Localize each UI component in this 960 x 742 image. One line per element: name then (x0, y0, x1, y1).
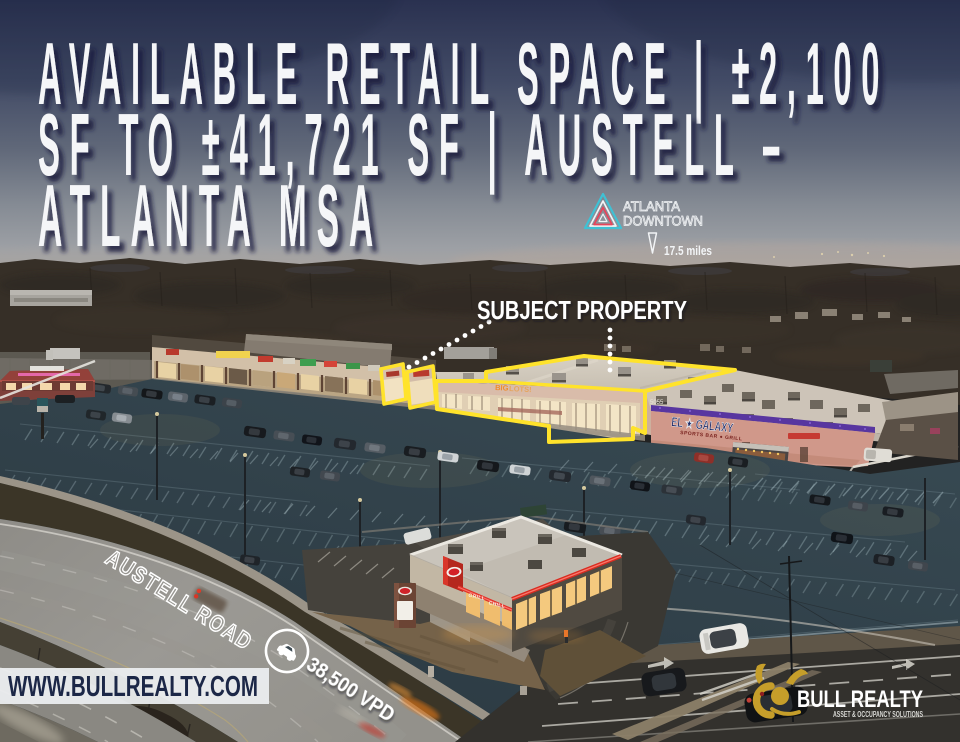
svg-text:BIG: BIG (495, 383, 509, 393)
svg-text:ATLANTA: ATLANTA (623, 199, 680, 214)
svg-text:WWW.BULLREALTY.COM: WWW.BULLREALTY.COM (8, 671, 258, 703)
svg-text:ATLANTA MSA: ATLANTA MSA (38, 166, 383, 265)
svg-text:ASSET & OCCUPANCY SOLUTIONS: ASSET & OCCUPANCY SOLUTIONS (833, 710, 923, 719)
svg-text:SUBJECT PROPERTY: SUBJECT PROPERTY (477, 295, 687, 325)
svg-text:17.5 miles: 17.5 miles (664, 244, 712, 258)
svg-text:5055: 5055 (650, 400, 664, 406)
svg-text:LOTS!: LOTS! (509, 384, 532, 394)
svg-text:BULL REALTY: BULL REALTY (797, 686, 923, 713)
svg-text:DOWNTOWN: DOWNTOWN (623, 214, 703, 229)
